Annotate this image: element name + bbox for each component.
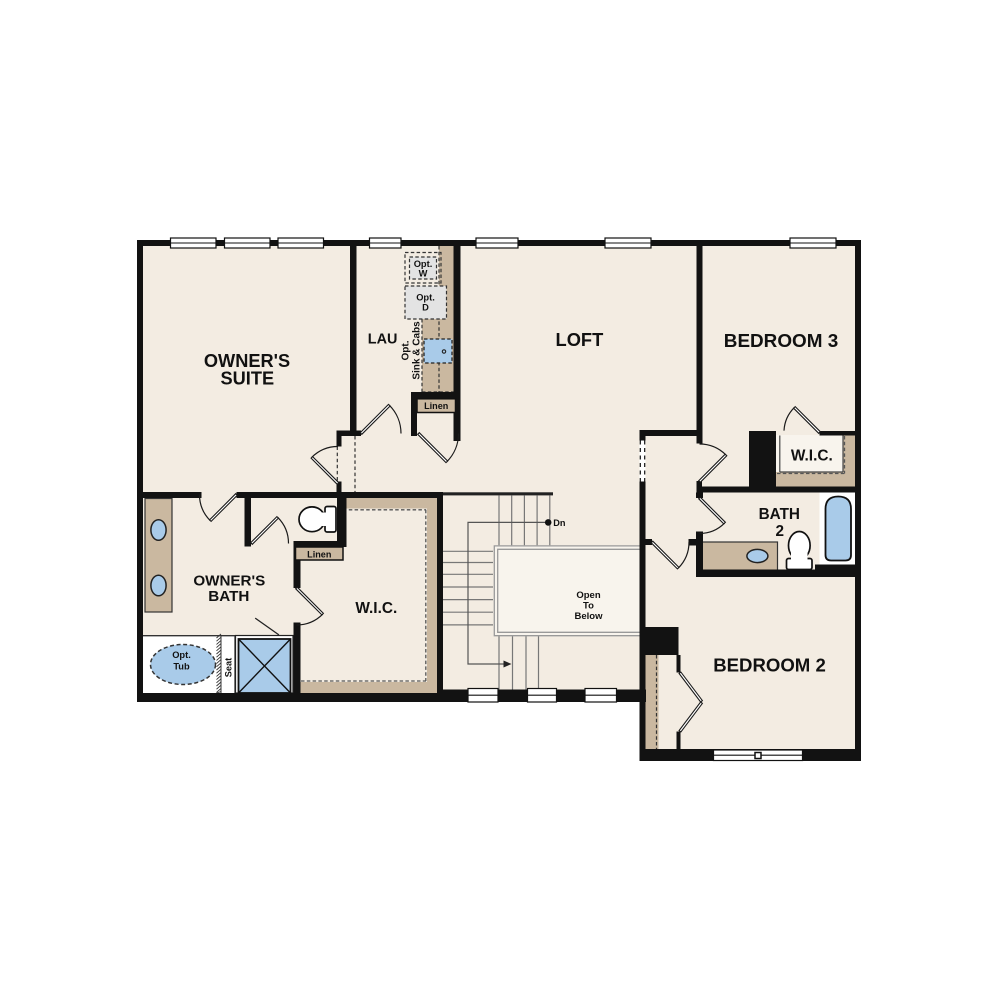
- svg-text:Linen: Linen: [424, 401, 448, 411]
- svg-text:LOFT: LOFT: [556, 329, 604, 350]
- svg-text:Dn: Dn: [553, 518, 566, 528]
- svg-text:BEDROOM 2: BEDROOM 2: [713, 655, 826, 676]
- svg-text:Seat: Seat: [224, 658, 234, 677]
- svg-text:Opt.: Opt.: [416, 293, 435, 303]
- svg-text:Open: Open: [576, 590, 600, 601]
- svg-text:W.I.C.: W.I.C.: [791, 447, 833, 464]
- svg-text:W.I.C.: W.I.C.: [355, 600, 397, 617]
- svg-text:2: 2: [775, 523, 784, 540]
- svg-text:Opt.: Opt.: [400, 340, 411, 360]
- svg-text:BEDROOM 3: BEDROOM 3: [724, 331, 838, 352]
- svg-text:BATH: BATH: [759, 506, 800, 523]
- svg-text:Tub: Tub: [173, 662, 190, 672]
- svg-text:BATH: BATH: [208, 588, 249, 605]
- svg-text:Linen: Linen: [307, 550, 331, 560]
- svg-text:Sink & Cabs: Sink & Cabs: [411, 321, 422, 380]
- svg-text:W: W: [419, 269, 428, 279]
- svg-text:To: To: [583, 601, 594, 612]
- svg-text:Opt.: Opt.: [414, 259, 433, 269]
- svg-text:SUITE: SUITE: [221, 369, 275, 389]
- svg-text:LAU: LAU: [368, 332, 398, 348]
- svg-text:Opt.: Opt.: [172, 650, 191, 660]
- svg-text:D: D: [422, 303, 429, 313]
- svg-text:Below: Below: [575, 611, 604, 622]
